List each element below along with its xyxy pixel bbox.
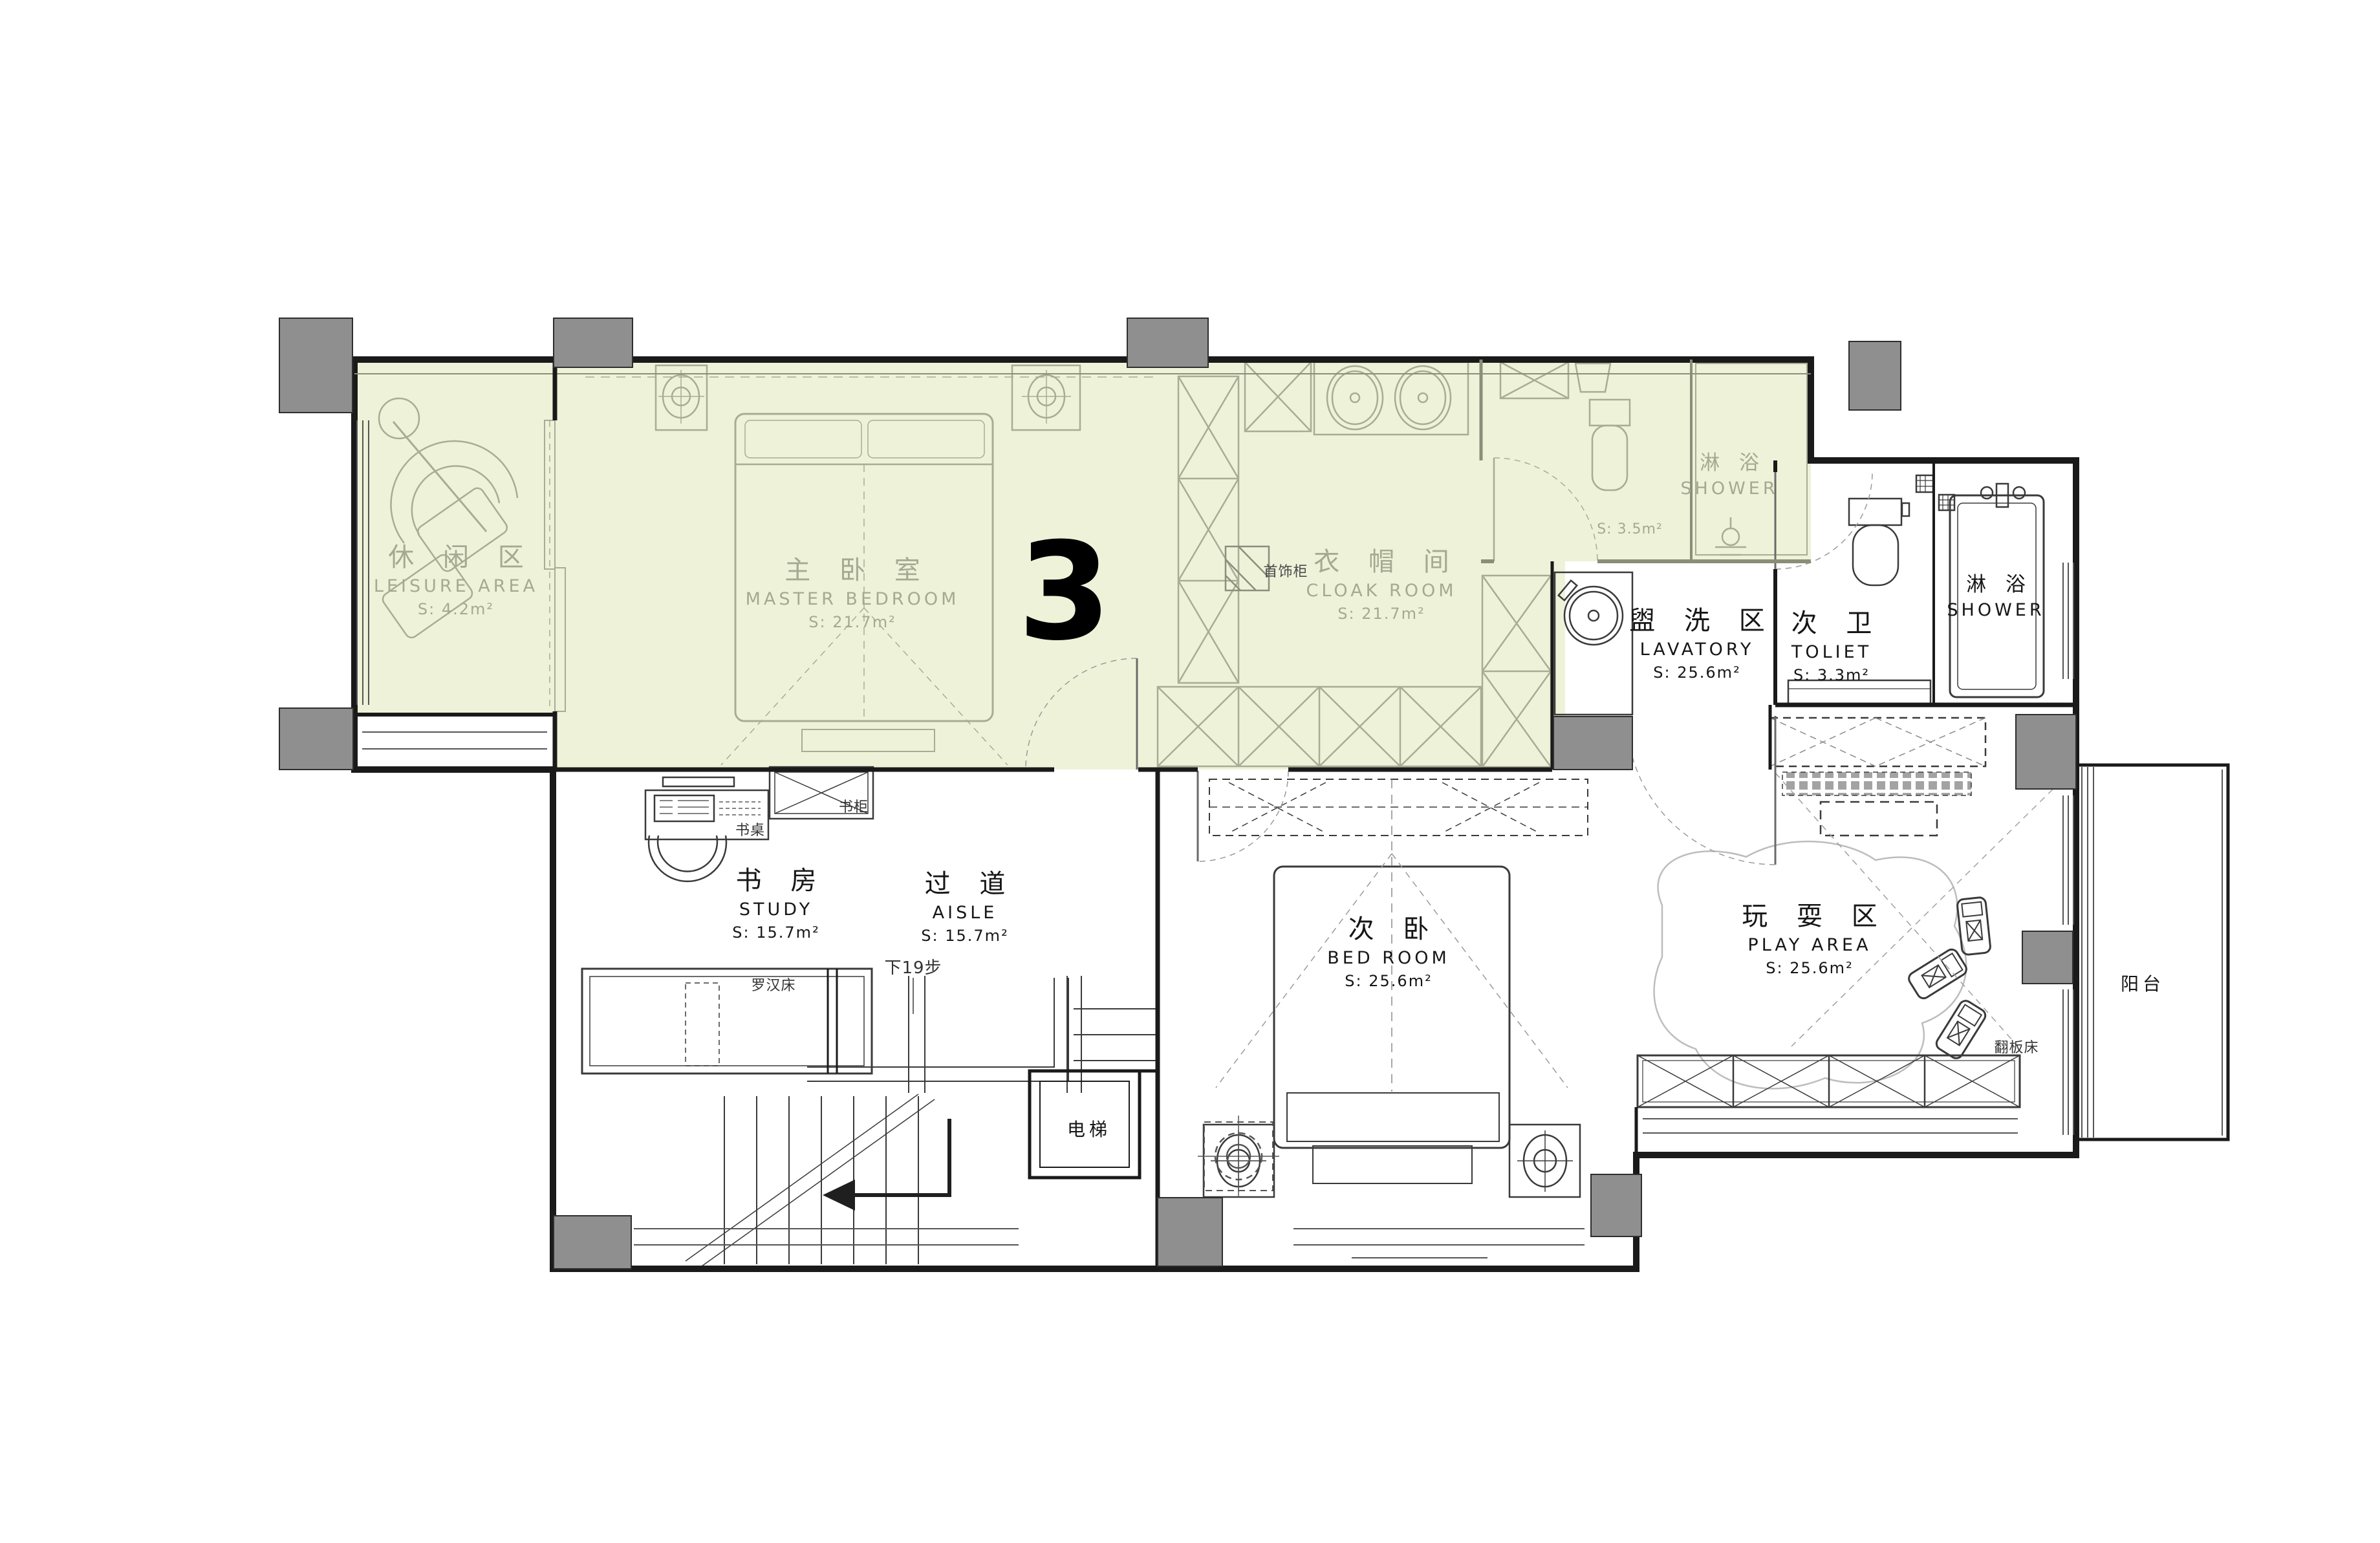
flip-bed-bench xyxy=(1638,1055,2020,1107)
room-name-en: MASTER BEDROOM xyxy=(746,589,960,610)
annotation-master-bath-area: S: 3.5m² xyxy=(1597,521,1663,537)
annotation-bookcase: 书柜 xyxy=(839,795,869,816)
room-area: S: 21.7m² xyxy=(1303,605,1459,623)
stair-direction-arrow xyxy=(852,1119,949,1195)
room-label-aisle: 过 道 AISLE S: 15.7m² xyxy=(914,869,1016,945)
room-area: S: 3.3m² xyxy=(1781,666,1883,685)
room-name-en: SHOWER xyxy=(1680,479,1778,499)
window xyxy=(2063,563,2073,679)
room-name-en: STUDY xyxy=(726,900,827,920)
pillar xyxy=(279,708,353,770)
room-name-zh: 淋 浴 xyxy=(1680,451,1778,475)
desk-chair xyxy=(649,836,726,881)
floor-drain xyxy=(1916,475,1933,492)
room-label-shower: 淋 浴 SHOWER xyxy=(1947,573,2044,621)
toy-car xyxy=(1934,998,1988,1061)
annotation-steps-down: 下19步 xyxy=(884,955,942,978)
annotation-flip-bed: 翻板床 xyxy=(1994,1036,2039,1057)
pillar xyxy=(279,318,352,413)
window xyxy=(634,1229,1019,1245)
floorplan-linework xyxy=(0,0,2380,1543)
room-label-bedroom: 次 卧 BED ROOM S: 25.6m² xyxy=(1327,914,1450,991)
bedroom-wardrobe xyxy=(1209,779,1588,836)
room-label-toilet: 次 卫 TOLIET S: 3.3m² xyxy=(1781,608,1883,685)
pillar xyxy=(1158,1198,1222,1266)
toy-car xyxy=(1957,897,1991,955)
pillar xyxy=(554,1216,631,1269)
window xyxy=(1643,1119,2018,1133)
floor-number: 3 xyxy=(1018,525,1112,660)
computer xyxy=(654,795,714,821)
room-name-zh: 衣 帽 间 xyxy=(1303,546,1459,577)
room-name-zh: 阳台 xyxy=(2117,973,2165,995)
room-name-en: SHOWER xyxy=(1947,600,2044,621)
window xyxy=(2063,795,2073,925)
room-label-study: 书 房 STUDY S: 15.7m² xyxy=(726,865,827,942)
room-name-zh: 书 房 xyxy=(726,865,827,896)
room-area: S: 25.6m² xyxy=(1731,959,1887,978)
room-name-zh: 淋 浴 xyxy=(1947,573,2044,597)
room-name-en: BED ROOM xyxy=(1327,948,1450,969)
room-label-master-shower: 淋 浴 SHOWER xyxy=(1680,451,1778,500)
toilet-tank xyxy=(1849,499,1901,525)
pillar xyxy=(554,318,633,367)
room-label-play-area: 玩 耍 区 PLAY AREA S: 25.6m² xyxy=(1731,901,1887,978)
window xyxy=(2063,989,2073,1135)
room-label-elevator: 电梯 xyxy=(1063,1119,1111,1141)
pillar xyxy=(1553,717,1632,770)
pillar xyxy=(1849,341,1901,410)
room-label-lavatory: 盥 洗 区 LAVATORY S: 25.6m² xyxy=(1619,605,1775,682)
room-label-cloak-room: 衣 帽 间 CLOAK ROOM S: 21.7m² xyxy=(1303,546,1459,623)
lavatory-sink xyxy=(1564,587,1623,645)
floor-outlet-symbol xyxy=(1198,1116,1279,1197)
room-label-leisure: 休 闲 区 LEISURE AREA S: 4.2m² xyxy=(374,542,538,619)
room-name-en: AISLE xyxy=(914,903,1016,923)
room-name-en: CLOAK ROOM xyxy=(1303,581,1459,601)
room-area: S: 25.6m² xyxy=(1619,664,1775,682)
window xyxy=(1293,1229,1585,1258)
annotation-jewelry-cabinet: 首饰柜 xyxy=(1263,560,1308,581)
room-name-zh: 次 卫 xyxy=(1781,608,1883,639)
room-name-en: LEISURE AREA xyxy=(374,576,538,597)
room-name-en: TOLIET xyxy=(1781,642,1883,663)
room-name-en: LAVATORY xyxy=(1619,640,1775,660)
balcony-outline xyxy=(2076,765,2228,1139)
room-label-master-bedroom: 主 卧 室 MASTER BEDROOM S: 21.7m² xyxy=(746,555,960,632)
room-area: S: 15.7m² xyxy=(914,927,1016,945)
room-name-zh: 玩 耍 区 xyxy=(1731,901,1887,932)
room-area: S: 4.2m² xyxy=(374,600,538,619)
room-name-zh: 主 卧 室 xyxy=(746,555,960,586)
room-name-zh: 盥 洗 区 xyxy=(1619,605,1775,636)
room-area: S: 21.7m² xyxy=(746,613,960,632)
pillar xyxy=(2022,931,2073,984)
room-name-zh: 过 道 xyxy=(914,869,1016,900)
pillar xyxy=(1591,1174,1641,1236)
annotation-daybed: 罗汉床 xyxy=(751,974,795,995)
toilet-bowl xyxy=(1853,525,1898,585)
room-label-balcony: 阳台 xyxy=(2117,973,2165,995)
pillar xyxy=(1127,318,1208,367)
room-name-zh: 电梯 xyxy=(1063,1119,1111,1141)
room-name-zh: 次 卧 xyxy=(1327,914,1450,945)
room-area: S: 25.6m² xyxy=(1327,972,1450,991)
pillar xyxy=(2016,715,2076,789)
room-name-zh: 休 闲 区 xyxy=(374,542,538,573)
floor-plan-page: 休 闲 区 LEISURE AREA S: 4.2m² 主 卧 室 MASTER… xyxy=(0,0,2380,1543)
play-area-cabinets xyxy=(1770,718,1985,836)
annotation-desk: 书桌 xyxy=(735,819,765,839)
room-area: S: 15.7m² xyxy=(726,923,827,942)
room-name-en: PLAY AREA xyxy=(1731,935,1887,956)
